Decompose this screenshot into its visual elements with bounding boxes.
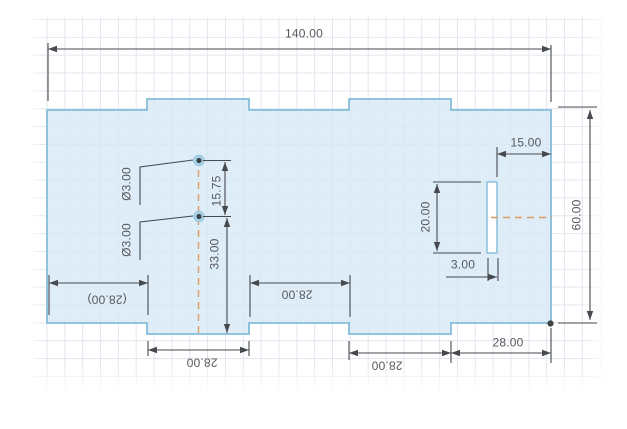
dim-label-overall-width[interactable]: 140.00: [285, 28, 323, 41]
arrow: [587, 311, 593, 320]
dim-label-slot-height[interactable]: 20.00: [420, 201, 433, 232]
arrow: [542, 46, 551, 52]
origin-point[interactable]: [547, 320, 553, 326]
dim-label-slot-offset[interactable]: 15.00: [510, 137, 541, 150]
arrow: [451, 350, 460, 356]
arrow: [542, 350, 551, 356]
arrow: [587, 110, 593, 119]
dim-label-hole-spacing[interactable]: 15.75: [211, 175, 224, 206]
dim-label-tab-left-width[interactable]: 28.00: [186, 356, 217, 369]
dim-label-slot-width[interactable]: 3.00: [451, 259, 475, 272]
dim-label-hole-upper-dia[interactable]: Ø3.00: [121, 167, 134, 201]
arrow: [240, 347, 249, 353]
dim-label-left-segment-ref[interactable]: (28.00): [87, 293, 126, 306]
hole-point-upper[interactable]: [194, 155, 204, 165]
hole-point-lower[interactable]: [194, 211, 204, 221]
arrow: [148, 347, 157, 353]
dim-label-hole-to-bottom[interactable]: 33.00: [209, 238, 222, 269]
dim-label-hole-lower-dia[interactable]: Ø3.00: [121, 223, 134, 257]
sketch-canvas: [0, 0, 627, 429]
dim-label-middle-segment[interactable]: 28.00: [281, 288, 312, 301]
dim-label-right-segment[interactable]: 28.00: [492, 337, 523, 350]
arrow: [48, 46, 57, 52]
arrow: [442, 350, 451, 356]
arrow: [349, 350, 358, 356]
dim-label-overall-height[interactable]: 60.00: [571, 199, 584, 230]
dim-label-tab-right-width[interactable]: 28.00: [371, 359, 402, 372]
